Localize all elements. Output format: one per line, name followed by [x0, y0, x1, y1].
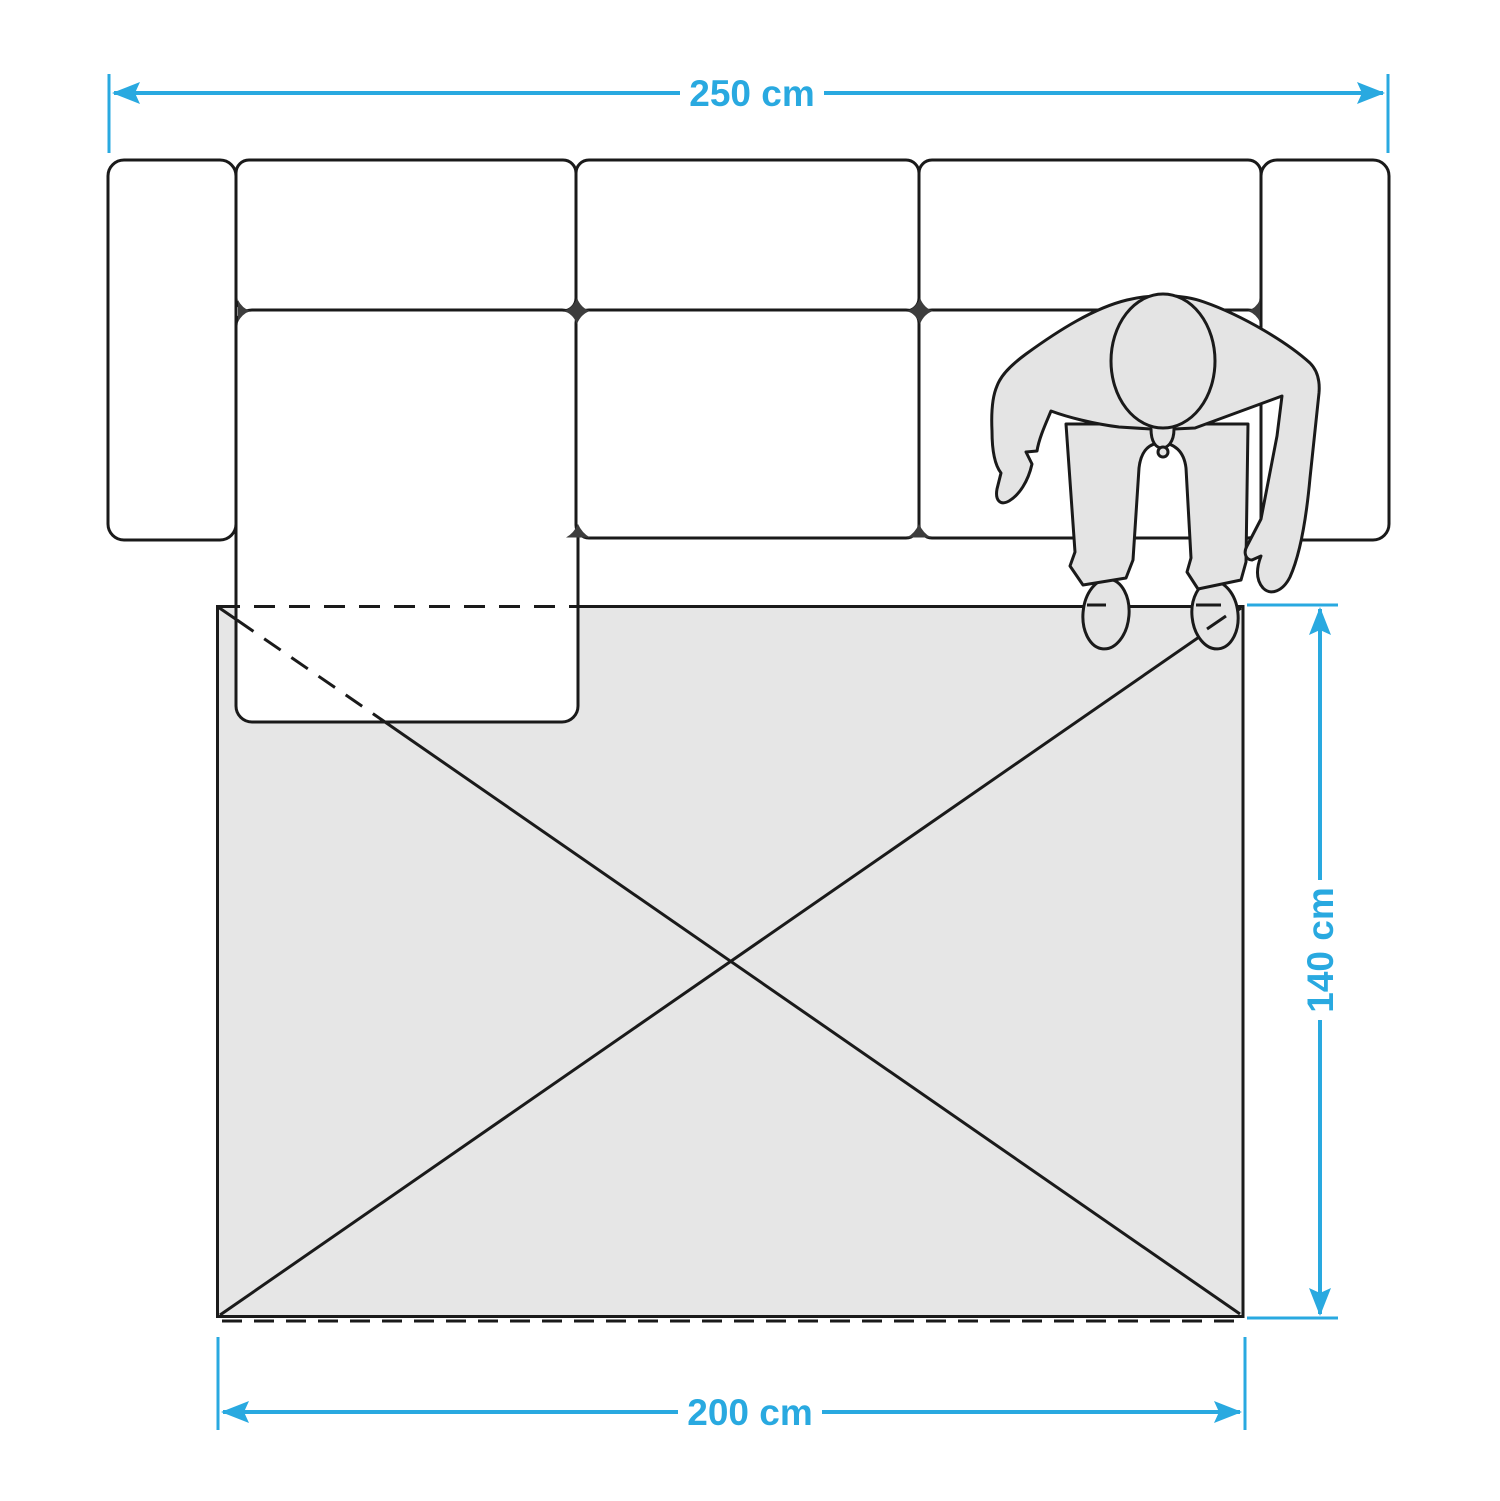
- sofa-back-cushion-3: [919, 160, 1261, 311]
- rug-size-diagram: 250 cm 140 cm 200 cm: [0, 0, 1500, 1501]
- person-head: [1111, 294, 1215, 428]
- person-collar-button: [1158, 447, 1168, 457]
- rug-width-label: 200 cm: [687, 1392, 813, 1433]
- dimension-rug-width: 200 cm: [218, 1337, 1245, 1433]
- diagram-svg: 250 cm 140 cm 200 cm: [0, 0, 1500, 1501]
- sofa-back-cushion-2: [576, 160, 919, 311]
- sofa-seat-cushion-2: [576, 310, 919, 538]
- sofa-back-cushion-1: [236, 160, 576, 311]
- dimension-rug-length: 140 cm: [1247, 605, 1341, 1318]
- sofa-width-label: 250 cm: [689, 73, 815, 114]
- sofa-chaise-cushion: [236, 310, 578, 722]
- rug-length-label: 140 cm: [1300, 887, 1341, 1013]
- dimension-sofa-width: 250 cm: [109, 73, 1388, 153]
- sofa-armrest-left: [108, 160, 236, 540]
